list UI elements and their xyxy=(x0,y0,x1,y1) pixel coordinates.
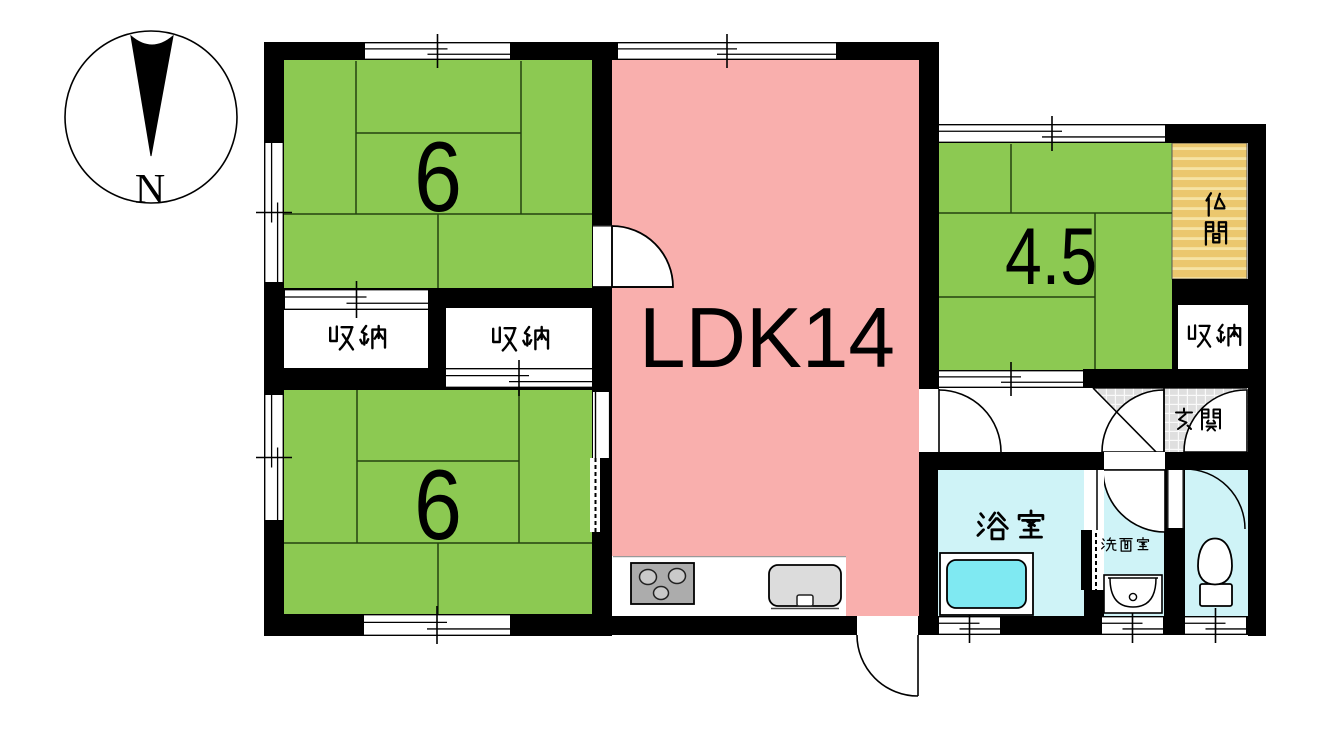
svg-text:N: N xyxy=(135,167,165,213)
svg-text:6: 6 xyxy=(414,449,462,560)
svg-text:LDK14: LDK14 xyxy=(639,291,895,386)
svg-text:6: 6 xyxy=(414,121,462,232)
svg-text:4.5: 4.5 xyxy=(1005,212,1097,302)
